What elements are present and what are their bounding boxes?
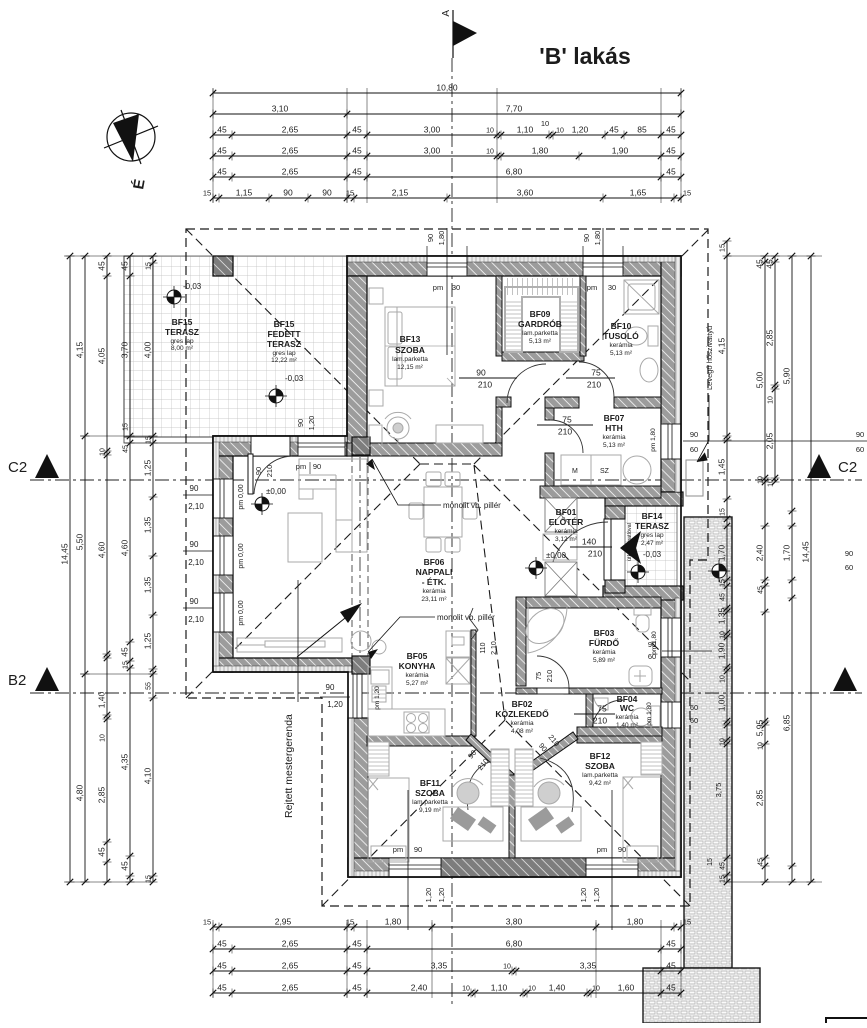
svg-text:5,50: 5,50	[75, 533, 85, 550]
svg-text:10: 10	[556, 128, 564, 135]
svg-text:pm 0,00: pm 0,00	[238, 600, 245, 625]
svg-text:3,12 m²: 3,12 m²	[555, 536, 578, 543]
svg-text:5,27 m²: 5,27 m²	[406, 680, 429, 687]
svg-text:±0,00: ±0,00	[546, 551, 567, 560]
svg-text:75: 75	[591, 368, 601, 378]
svg-text:9,42 m²: 9,42 m²	[589, 780, 612, 787]
svg-text:5,13 m²: 5,13 m²	[529, 338, 552, 345]
svg-text:1,25: 1,25	[143, 459, 153, 476]
svg-text:BF15: BF15	[274, 319, 295, 329]
svg-text:5,90: 5,90	[782, 367, 792, 384]
svg-text:10: 10	[541, 119, 549, 128]
svg-text:60: 60	[856, 445, 864, 454]
svg-text:60: 60	[690, 445, 698, 454]
svg-text:TERASZ: TERASZ	[635, 521, 669, 531]
svg-text:GARDRÓB: GARDRÓB	[518, 318, 562, 329]
svg-text:45: 45	[217, 146, 227, 156]
svg-text:BF02: BF02	[512, 699, 533, 709]
svg-text:45: 45	[765, 259, 775, 269]
svg-text:kerámia: kerámia	[592, 649, 616, 656]
svg-text:SZOBA: SZOBA	[395, 345, 425, 355]
svg-text:45: 45	[666, 167, 676, 177]
svg-text:4,00: 4,00	[143, 341, 153, 358]
svg-text:1,80: 1,80	[627, 917, 644, 927]
svg-text:2,40: 2,40	[411, 983, 428, 993]
svg-text:5,89 m²: 5,89 m²	[593, 657, 616, 664]
svg-text:4,35: 4,35	[120, 753, 130, 770]
svg-text:2,85: 2,85	[755, 789, 765, 806]
svg-text:1,35: 1,35	[143, 576, 153, 593]
svg-text:2,47 m²: 2,47 m²	[641, 540, 664, 547]
svg-text:90: 90	[845, 549, 853, 558]
svg-text:BF14: BF14	[642, 511, 663, 521]
svg-text:45: 45	[97, 261, 107, 271]
svg-text:15: 15	[123, 661, 130, 669]
svg-text:14,45: 14,45	[801, 541, 811, 563]
svg-text:kerámia: kerámia	[405, 672, 429, 679]
svg-text:75: 75	[597, 704, 607, 714]
svg-text:pm 1,20: pm 1,20	[374, 686, 381, 710]
svg-text:2,65: 2,65	[282, 961, 299, 971]
svg-text:2,65: 2,65	[282, 939, 299, 949]
svg-text:1,80: 1,80	[437, 231, 446, 246]
svg-text:30: 30	[452, 283, 460, 292]
svg-text:2,10: 2,10	[188, 558, 204, 567]
svg-text:45: 45	[666, 146, 676, 156]
svg-text:75: 75	[534, 672, 543, 680]
svg-text:HTH: HTH	[605, 423, 622, 433]
svg-text:KÖZLEKEDŐ: KÖZLEKEDŐ	[495, 708, 549, 719]
svg-text:10: 10	[768, 479, 775, 487]
svg-text:45: 45	[352, 961, 362, 971]
svg-text:kerámia: kerámia	[510, 720, 534, 727]
svg-text:4,60: 4,60	[120, 539, 130, 556]
svg-text:BF03: BF03	[594, 628, 615, 638]
svg-text:10: 10	[720, 738, 727, 746]
svg-text:BF15: BF15	[172, 317, 193, 327]
svg-text:BF09: BF09	[530, 309, 551, 319]
svg-text:NAPPALI: NAPPALI	[416, 567, 453, 577]
svg-text:140: 140	[582, 537, 596, 547]
svg-text:5,13 m²: 5,13 m²	[603, 442, 626, 449]
svg-text:pm: pm	[433, 283, 443, 292]
svg-text:1,20: 1,20	[437, 888, 446, 903]
svg-text:3,70: 3,70	[120, 341, 130, 358]
svg-text:90: 90	[283, 188, 293, 198]
svg-text:90: 90	[618, 845, 626, 854]
svg-text:BF06: BF06	[424, 557, 445, 567]
svg-text:10: 10	[768, 396, 775, 404]
svg-text:4,05: 4,05	[97, 347, 107, 364]
svg-text:45: 45	[217, 939, 227, 949]
svg-text:3,80: 3,80	[506, 917, 523, 927]
svg-text:1,20: 1,20	[572, 125, 589, 135]
svg-text:A: A	[441, 10, 452, 17]
svg-text:1,15: 1,15	[236, 188, 253, 198]
svg-text:2,65: 2,65	[282, 167, 299, 177]
svg-text:1,45: 1,45	[717, 458, 727, 475]
svg-text:90: 90	[190, 597, 199, 606]
svg-text:2,65: 2,65	[282, 125, 299, 135]
svg-text:TERASZ: TERASZ	[165, 327, 199, 337]
svg-text:BF07: BF07	[604, 413, 625, 423]
svg-text:45: 45	[758, 858, 765, 866]
svg-text:210: 210	[478, 380, 492, 390]
svg-text:2,85: 2,85	[97, 786, 107, 803]
svg-text:BF10: BF10	[611, 321, 632, 331]
svg-text:6,80: 6,80	[506, 939, 523, 949]
svg-text:45: 45	[217, 961, 227, 971]
svg-text:3,60: 3,60	[517, 188, 534, 198]
svg-text:14,45: 14,45	[60, 543, 70, 565]
svg-text:15: 15	[718, 244, 727, 252]
svg-text:12,22 m²: 12,22 m²	[271, 357, 297, 364]
svg-text:15: 15	[707, 858, 714, 866]
svg-text:pm 0,00: pm 0,00	[238, 543, 245, 568]
svg-text:5,13 m²: 5,13 m²	[610, 350, 633, 357]
svg-text:10: 10	[486, 149, 494, 156]
svg-text:1,00: 1,00	[717, 694, 727, 711]
svg-text:90: 90	[426, 234, 435, 242]
svg-text:2,65: 2,65	[282, 146, 299, 156]
svg-text:1,40: 1,40	[549, 983, 566, 993]
svg-text:3,10: 3,10	[272, 104, 289, 114]
svg-text:kerámia: kerámia	[615, 714, 639, 721]
svg-text:45: 45	[120, 861, 130, 871]
svg-text:C2: C2	[8, 459, 27, 476]
svg-text:BF13: BF13	[400, 334, 421, 344]
svg-text:45: 45	[352, 146, 362, 156]
svg-text:45: 45	[609, 125, 619, 135]
svg-text:4,80: 4,80	[75, 784, 85, 801]
svg-text:pm: pm	[587, 283, 597, 292]
svg-text:1,20: 1,20	[327, 700, 343, 709]
svg-text:5,00: 5,00	[755, 371, 765, 388]
svg-text:210: 210	[265, 465, 274, 478]
svg-text:1,20: 1,20	[579, 888, 588, 903]
svg-text:-0,03: -0,03	[643, 550, 662, 559]
svg-text:1,90: 1,90	[612, 146, 629, 156]
svg-text:90: 90	[313, 462, 321, 471]
svg-text:FÜRDŐ: FÜRDŐ	[589, 637, 620, 648]
svg-text:2,85: 2,85	[765, 329, 775, 346]
svg-text:45: 45	[352, 125, 362, 135]
svg-text:110: 110	[480, 642, 487, 653]
svg-text:1,70: 1,70	[782, 544, 792, 561]
svg-text:90: 90	[190, 540, 199, 549]
svg-text:KONYHA: KONYHA	[399, 661, 436, 671]
svg-text:1,20: 1,20	[307, 416, 316, 431]
svg-text:kerámia: kerámia	[554, 528, 578, 535]
svg-text:15: 15	[203, 189, 211, 198]
svg-text:3,35: 3,35	[431, 961, 448, 971]
svg-text:kerámia: kerámia	[602, 434, 626, 441]
svg-text:45: 45	[352, 167, 362, 177]
svg-text:3,75: 3,75	[714, 783, 723, 798]
svg-text:1,20: 1,20	[424, 888, 433, 903]
svg-text:WC: WC	[620, 703, 634, 713]
svg-text:15: 15	[146, 436, 153, 444]
svg-text:10: 10	[462, 986, 470, 993]
svg-text:1,80: 1,80	[532, 146, 549, 156]
svg-text:3,35: 3,35	[580, 961, 597, 971]
svg-text:1,80: 1,80	[385, 917, 402, 927]
svg-text:1,40 m²: 1,40 m²	[616, 722, 639, 729]
svg-text:45: 45	[755, 259, 765, 269]
svg-text:8,00 m²: 8,00 m²	[171, 345, 194, 352]
svg-text:BF11: BF11	[420, 778, 441, 788]
svg-text:15: 15	[720, 579, 727, 587]
svg-text:1,90: 1,90	[717, 642, 727, 659]
svg-text:2,15: 2,15	[392, 188, 409, 198]
svg-text:TUSOLÓ: TUSOLÓ	[603, 330, 639, 341]
svg-text:2,10: 2,10	[491, 641, 498, 655]
svg-text:90: 90	[690, 430, 698, 439]
svg-text:monolit vb. pillér: monolit vb. pillér	[437, 613, 495, 622]
svg-text:45: 45	[758, 586, 765, 594]
svg-text:90: 90	[322, 188, 332, 198]
svg-text:45: 45	[720, 593, 727, 601]
svg-text:1,40: 1,40	[97, 691, 107, 708]
svg-text:23,11 m²: 23,11 m²	[421, 596, 447, 603]
svg-text:lam.parketta: lam.parketta	[412, 799, 448, 806]
svg-text:2,40: 2,40	[755, 544, 765, 561]
svg-text:15: 15	[683, 189, 691, 198]
svg-text:90: 90	[476, 368, 486, 378]
svg-text:210: 210	[558, 427, 572, 437]
svg-text:pm 1,80: pm 1,80	[646, 702, 653, 726]
svg-text:45: 45	[666, 125, 676, 135]
svg-text:monolit vb. pillér: monolit vb. pillér	[443, 501, 501, 510]
svg-text:pm 1,80: pm 1,80	[651, 631, 658, 655]
svg-text:15: 15	[720, 875, 727, 883]
svg-text:4,10: 4,10	[143, 767, 153, 784]
svg-text:-0,03: -0,03	[183, 282, 202, 291]
svg-text:SZOBA: SZOBA	[415, 788, 445, 798]
svg-text:9,19 m²: 9,19 m²	[419, 807, 442, 814]
svg-text:6,85: 6,85	[782, 714, 792, 731]
svg-text:4,60: 4,60	[97, 541, 107, 558]
svg-text:pm 0,00: pm 0,00	[238, 484, 245, 509]
svg-text:pm: pm	[597, 845, 607, 854]
svg-text:4,15: 4,15	[717, 337, 727, 354]
svg-text:10: 10	[720, 631, 727, 639]
svg-text:45: 45	[352, 983, 362, 993]
svg-text:15: 15	[203, 918, 211, 927]
svg-text:lam.parketta: lam.parketta	[392, 356, 428, 363]
svg-text:4,08 m²: 4,08 m²	[511, 728, 534, 735]
svg-text:45: 45	[120, 647, 130, 657]
svg-text:45: 45	[666, 961, 676, 971]
svg-text:pm 1,80: pm 1,80	[650, 428, 657, 452]
svg-text:45: 45	[352, 939, 362, 949]
svg-text:'B' lakás: 'B' lakás	[539, 43, 631, 69]
svg-text:1,10: 1,10	[517, 125, 534, 135]
svg-text:10: 10	[758, 742, 765, 750]
svg-text:210: 210	[588, 549, 602, 559]
svg-text:5,95: 5,95	[755, 719, 765, 736]
svg-text:pm: pm	[393, 845, 403, 854]
svg-text:1,35: 1,35	[717, 607, 727, 624]
svg-text:M: M	[572, 468, 578, 475]
svg-text:45: 45	[666, 983, 676, 993]
svg-text:4,15: 4,15	[75, 341, 85, 358]
svg-text:lam.parketta: lam.parketta	[582, 772, 618, 779]
svg-text:15: 15	[123, 423, 130, 431]
svg-text:210: 210	[587, 380, 601, 390]
svg-text:SZOBA: SZOBA	[585, 761, 615, 771]
svg-text:210: 210	[545, 670, 554, 683]
svg-text:85: 85	[637, 125, 647, 135]
svg-text:10: 10	[720, 675, 727, 683]
svg-text:2,95: 2,95	[275, 917, 292, 927]
svg-text:45: 45	[217, 167, 227, 177]
svg-text:10: 10	[528, 986, 536, 993]
svg-text:3,00: 3,00	[424, 146, 441, 156]
svg-text:gres lap: gres lap	[170, 338, 194, 345]
svg-text:15: 15	[720, 508, 727, 516]
svg-text:FEDETT: FEDETT	[267, 329, 301, 339]
svg-text:6,80: 6,80	[506, 167, 523, 177]
svg-text:BF05: BF05	[407, 651, 428, 661]
svg-text:60: 60	[690, 716, 698, 725]
svg-text:TERASZ: TERASZ	[267, 339, 301, 349]
svg-text:15: 15	[146, 262, 153, 270]
svg-text:10: 10	[486, 128, 494, 135]
svg-text:Levegő hőszivattyú: Levegő hőszivattyú	[705, 326, 714, 390]
svg-text:±0,00: ±0,00	[266, 487, 287, 496]
svg-text:lam.parketta: lam.parketta	[522, 330, 558, 337]
svg-text:45: 45	[123, 445, 130, 453]
svg-text:BF01: BF01	[556, 507, 577, 517]
svg-text:- ÉTK.: - ÉTK.	[422, 577, 447, 587]
svg-text:1,70: 1,70	[717, 544, 727, 561]
svg-text:2,10: 2,10	[188, 615, 204, 624]
svg-text:45: 45	[97, 847, 107, 857]
svg-text:kerámia: kerámia	[609, 342, 633, 349]
svg-text:C2: C2	[838, 459, 857, 476]
svg-text:45: 45	[217, 983, 227, 993]
svg-text:10: 10	[758, 476, 765, 484]
svg-text:1,25: 1,25	[143, 632, 153, 649]
svg-text:10: 10	[503, 964, 511, 971]
svg-text:45: 45	[120, 261, 130, 271]
svg-text:2,65: 2,65	[282, 983, 299, 993]
svg-text:15: 15	[683, 918, 691, 927]
svg-text:gres lap: gres lap	[640, 532, 664, 539]
svg-text:90: 90	[326, 683, 335, 692]
svg-text:45: 45	[217, 125, 227, 135]
svg-text:-0,03: -0,03	[285, 374, 304, 383]
svg-text:7,70: 7,70	[506, 104, 523, 114]
svg-text:60: 60	[845, 563, 853, 572]
svg-text:60: 60	[690, 703, 698, 712]
svg-text:B2: B2	[8, 672, 26, 689]
svg-text:12,15 m²: 12,15 m²	[397, 364, 423, 371]
svg-text:90: 90	[582, 234, 591, 242]
svg-text:210: 210	[593, 716, 607, 726]
svg-text:90: 90	[296, 419, 305, 427]
svg-text:gres lap: gres lap	[272, 350, 296, 357]
svg-text:75: 75	[562, 415, 572, 425]
svg-text:BF12: BF12	[590, 751, 611, 761]
svg-text:pm: pm	[296, 462, 306, 471]
svg-text:30: 30	[608, 283, 616, 292]
svg-text:10,80: 10,80	[436, 83, 458, 93]
svg-text:kerámia: kerámia	[422, 588, 446, 595]
svg-text:ELŐTÉR: ELŐTÉR	[549, 516, 583, 527]
svg-text:1,65: 1,65	[630, 188, 647, 198]
svg-text:2,10: 2,10	[188, 502, 204, 511]
svg-text:1,10: 1,10	[491, 983, 508, 993]
svg-text:90: 90	[856, 430, 864, 439]
svg-text:1,80: 1,80	[593, 231, 602, 246]
svg-text:90: 90	[254, 467, 263, 475]
svg-text:1,60: 1,60	[618, 983, 635, 993]
svg-text:15: 15	[146, 875, 153, 883]
svg-text:45: 45	[720, 862, 727, 870]
svg-text:1,35: 1,35	[143, 516, 153, 533]
svg-text:10: 10	[100, 448, 107, 456]
svg-text:1,20: 1,20	[592, 888, 601, 903]
svg-text:90: 90	[414, 845, 422, 854]
svg-text:45: 45	[666, 939, 676, 949]
svg-text:55: 55	[146, 682, 153, 690]
svg-text:SZ: SZ	[600, 468, 610, 475]
svg-text:10: 10	[100, 734, 107, 742]
svg-text:90: 90	[190, 484, 199, 493]
svg-text:3,00: 3,00	[424, 125, 441, 135]
svg-text:Rejtett mestergerenda: Rejtett mestergerenda	[283, 714, 295, 818]
